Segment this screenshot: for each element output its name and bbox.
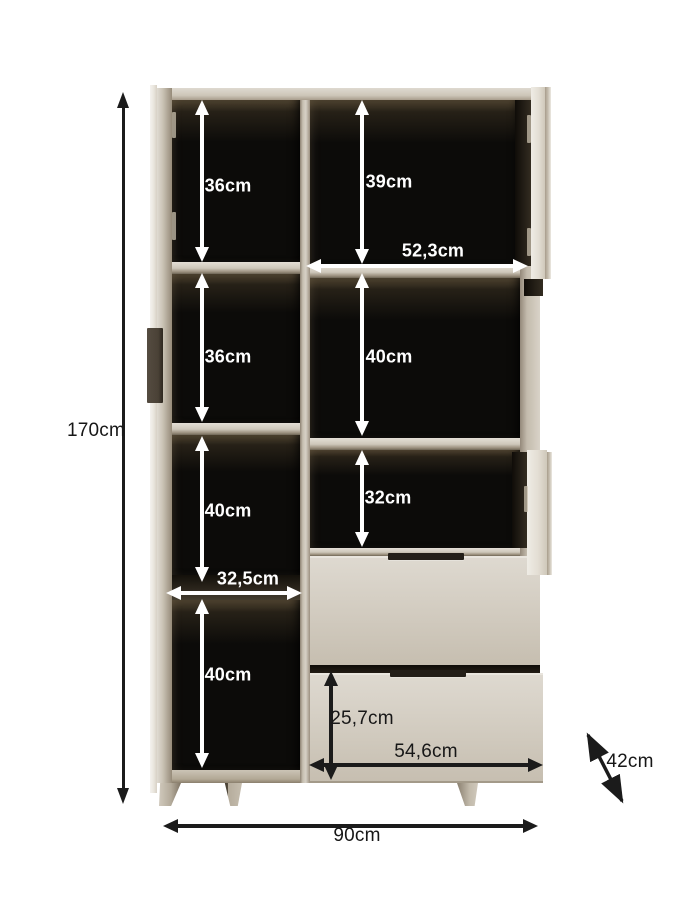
arrow-line	[320, 763, 532, 767]
furniture-dimension-diagram: 170cm 36cm 36cm 40cm 40cm 39cm 40cm 32cm…	[0, 0, 700, 901]
hinge-mark	[524, 486, 528, 512]
dim-label-left-inner-width: 32,5cm	[217, 569, 279, 590]
arrow-line	[200, 610, 204, 757]
dim-label-depth: 42cm	[606, 751, 653, 773]
drawer-1	[310, 556, 540, 665]
open-door-top	[531, 87, 545, 279]
dim-label-right-inner-width: 52,3cm	[402, 241, 464, 262]
dim-label-total-height: 170cm	[67, 420, 125, 442]
leg-center	[221, 783, 242, 806]
dim-label-drawer-height: 25,7cm	[330, 708, 394, 730]
cabinet-base-left	[172, 770, 300, 783]
arrow-line	[200, 284, 204, 411]
door-handle-left	[147, 328, 163, 403]
dim-label-right-2: 40cm	[366, 347, 413, 368]
arrow-line	[317, 264, 517, 268]
arrow-line	[360, 284, 364, 425]
open-door-middle	[527, 450, 547, 575]
arrowhead	[117, 788, 129, 804]
dim-label-total-width: 90cm	[333, 825, 380, 847]
drawer-2-handle	[390, 670, 466, 677]
left-door-edge	[150, 85, 157, 793]
arrow-line	[122, 104, 125, 792]
dim-label-right-1: 39cm	[366, 172, 413, 193]
dim-label-left-2: 36cm	[205, 347, 252, 368]
shelf-right-2	[310, 438, 520, 450]
arrowhead	[195, 753, 209, 768]
left-side-panel	[157, 88, 172, 783]
dim-label-right-3: 32cm	[365, 488, 412, 509]
dim-label-left-3: 40cm	[205, 501, 252, 522]
arrowhead	[195, 407, 209, 422]
shelf-left-2	[172, 423, 300, 435]
arrowhead	[195, 567, 209, 582]
drawer-1-handle	[388, 553, 464, 560]
cubby-right-2	[310, 278, 520, 438]
arrowhead	[287, 586, 302, 600]
arrowhead	[523, 819, 538, 833]
arrow-line	[360, 461, 364, 536]
dim-label-drawer-width: 54,6cm	[394, 741, 458, 763]
arrow-line	[200, 111, 204, 251]
arrowhead	[528, 758, 543, 772]
center-divider	[300, 100, 310, 783]
dim-label-left-4: 40cm	[205, 665, 252, 686]
arrowhead	[513, 259, 528, 273]
hinge-mark	[527, 115, 531, 143]
open-door-top-shadow	[524, 279, 543, 296]
arrowhead	[195, 247, 209, 262]
hinge-mark	[172, 212, 176, 240]
hinge-mark	[172, 112, 176, 138]
cubby-right-3	[310, 450, 520, 548]
arrowhead	[355, 421, 369, 436]
arrow-line	[200, 447, 204, 571]
shelf-left-1	[172, 262, 300, 274]
dim-label-left-1: 36cm	[205, 176, 252, 197]
arrow-line	[177, 591, 291, 595]
leg-right	[457, 783, 478, 806]
cabinet-bottom-shadow	[310, 781, 543, 783]
top-panel	[157, 88, 540, 100]
hinge-mark	[527, 228, 531, 256]
arrow-line	[360, 111, 364, 253]
open-door-top-edge	[545, 87, 551, 279]
leg-left	[159, 783, 181, 806]
open-door-middle-edge	[547, 452, 552, 575]
arrowhead	[355, 532, 369, 547]
dim-arrow-total-height	[115, 92, 131, 804]
